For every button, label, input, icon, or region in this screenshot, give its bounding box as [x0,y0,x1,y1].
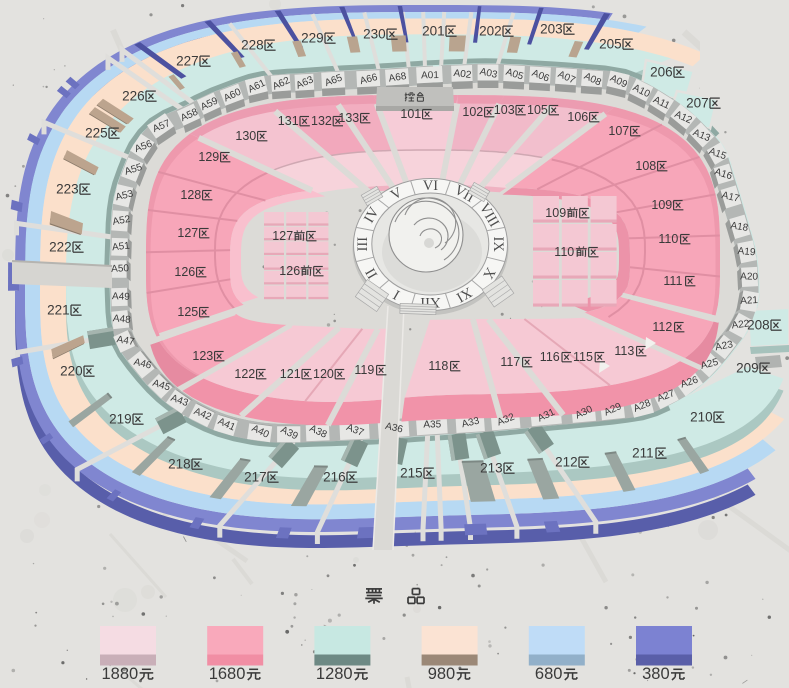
svg-text:A01: A01 [421,70,439,81]
svg-text:228: 228 [241,38,264,53]
svg-text:209: 209 [736,361,759,376]
svg-text:126: 126 [279,264,300,278]
svg-text:128: 128 [180,188,201,202]
svg-text:116: 116 [540,350,560,364]
svg-text:119: 119 [354,363,374,377]
svg-text:213: 213 [480,461,503,476]
svg-text:220: 220 [60,364,83,379]
svg-text:380: 380 [642,665,670,683]
svg-text:109: 109 [651,198,672,212]
svg-text:207: 207 [686,96,709,111]
svg-text:A50: A50 [111,263,130,275]
svg-text:203: 203 [540,22,563,37]
svg-text:215: 215 [400,466,423,481]
svg-text:118: 118 [428,359,448,373]
svg-text:225: 225 [85,126,108,141]
svg-text:VI: VI [423,178,438,194]
svg-text:113: 113 [614,344,634,358]
svg-text:212: 212 [555,455,578,470]
svg-text:A19: A19 [737,246,756,259]
svg-text:211: 211 [632,446,654,461]
svg-text:115: 115 [573,350,593,364]
svg-text:110: 110 [658,232,678,246]
svg-text:219: 219 [109,412,132,427]
svg-text:1680: 1680 [209,665,246,683]
svg-text:A49: A49 [112,291,131,303]
svg-text:127: 127 [177,226,198,240]
svg-text:127: 127 [272,229,293,243]
svg-text:A02: A02 [453,68,472,81]
svg-text:210: 210 [690,410,713,425]
svg-text:1880: 1880 [102,665,139,683]
svg-text:222: 222 [49,240,72,255]
svg-text:108: 108 [635,159,656,173]
svg-text:110: 110 [554,245,574,259]
svg-text:226: 226 [122,89,145,104]
svg-text:A20: A20 [740,271,758,282]
svg-text:123: 123 [192,349,213,363]
svg-text:129: 129 [198,150,219,164]
svg-text:III: III [355,237,371,252]
svg-text:227: 227 [176,54,199,69]
svg-text:980: 980 [428,665,456,683]
svg-text:1280: 1280 [316,665,353,683]
svg-text:106: 106 [567,110,588,124]
svg-text:109: 109 [545,206,566,220]
svg-text:120: 120 [313,367,334,381]
svg-text:680: 680 [535,665,563,683]
svg-text:101: 101 [400,107,421,121]
svg-text:103: 103 [494,103,515,117]
svg-text:111: 111 [663,274,682,288]
svg-text:A51: A51 [112,241,131,254]
svg-text:230: 230 [363,27,386,42]
svg-text:107: 107 [608,124,629,138]
svg-text:133: 133 [338,111,359,125]
svg-text:217: 217 [244,470,267,485]
svg-text:126: 126 [174,265,195,279]
svg-text:A21: A21 [740,295,759,307]
svg-text:221: 221 [47,303,70,318]
svg-text:130: 130 [235,129,256,143]
svg-text:202: 202 [479,24,502,39]
svg-text:132: 132 [311,114,332,128]
svg-text:112: 112 [652,320,672,334]
svg-text:229: 229 [301,31,324,46]
svg-text:205: 205 [599,37,622,52]
svg-text:125: 125 [177,305,198,319]
svg-text:102: 102 [462,105,483,119]
svg-text:105: 105 [527,103,548,117]
svg-text:IX: IX [490,237,506,253]
svg-text:208: 208 [747,318,770,333]
svg-text:218: 218 [168,457,191,472]
svg-text:121: 121 [280,367,301,381]
svg-text:206: 206 [650,65,673,80]
svg-text:117: 117 [500,355,520,369]
svg-text:122: 122 [234,367,255,381]
svg-text:201: 201 [422,24,445,39]
svg-text:223: 223 [56,182,79,197]
svg-text:216: 216 [323,470,346,485]
svg-text:131: 131 [278,114,299,128]
svg-text:A48: A48 [112,313,131,326]
svg-text:A22: A22 [731,318,750,331]
svg-text:A35: A35 [423,420,441,431]
